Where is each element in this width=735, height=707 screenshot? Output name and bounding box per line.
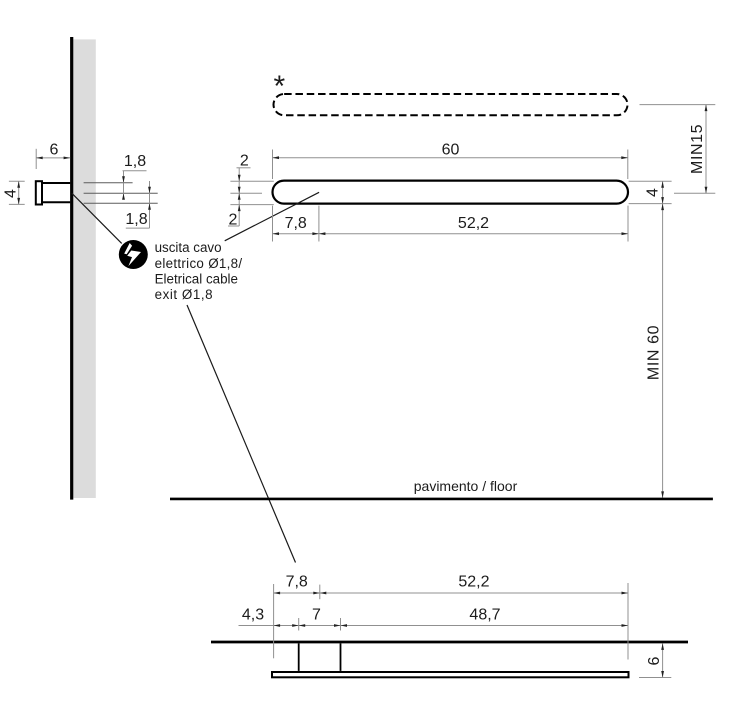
svg-text:*: *	[274, 70, 286, 103]
svg-text:48,7: 48,7	[469, 607, 500, 624]
svg-text:6: 6	[50, 142, 59, 159]
svg-text:MIN 60: MIN 60	[645, 325, 662, 380]
svg-text:pavimento / floor: pavimento / floor	[414, 478, 518, 494]
svg-text:52,2: 52,2	[458, 574, 489, 591]
svg-text:4: 4	[645, 188, 662, 197]
svg-text:1,8: 1,8	[124, 153, 146, 170]
svg-text:4: 4	[2, 189, 19, 198]
svg-text:52,2: 52,2	[458, 215, 489, 232]
svg-text:60: 60	[442, 142, 460, 159]
svg-text:7: 7	[312, 607, 321, 624]
svg-text:elettrico Ø1,8/: elettrico Ø1,8/	[155, 256, 243, 271]
svg-text:7,8: 7,8	[285, 215, 307, 232]
svg-text:7,8: 7,8	[286, 574, 308, 591]
svg-text:6: 6	[646, 656, 663, 665]
svg-text:1,8: 1,8	[125, 211, 147, 228]
svg-text:4,3: 4,3	[242, 607, 264, 624]
svg-text:MIN15: MIN15	[689, 124, 706, 174]
svg-text:Eletrical cable: Eletrical cable	[155, 271, 238, 286]
svg-text:exit Ø1,8: exit Ø1,8	[155, 287, 214, 302]
svg-text:2: 2	[240, 152, 249, 169]
svg-text:uscita cavo: uscita cavo	[155, 240, 222, 255]
